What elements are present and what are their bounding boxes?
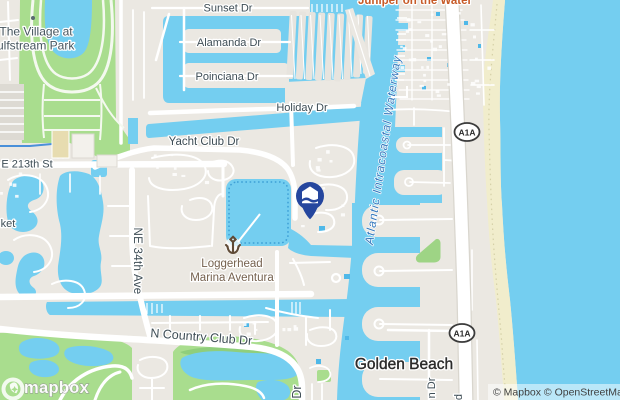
svg-text:The Village at: The Village at (0, 25, 73, 39)
svg-text:Alamanda Dr: Alamanda Dr (197, 37, 262, 49)
svg-text:Gulfstream Park: Gulfstream Park (0, 39, 75, 53)
svg-text:A1A: A1A (458, 127, 475, 137)
svg-text:Loggerhead: Loggerhead (201, 258, 262, 270)
svg-text:Dr: Dr (290, 385, 304, 398)
svg-text:Marina Aventura: Marina Aventura (190, 272, 274, 284)
svg-text:E 213th St: E 213th St (1, 159, 52, 171)
svg-text:A1A: A1A (453, 328, 470, 338)
svg-text:n Dr: n Dr (426, 377, 438, 398)
svg-text:Yacht Club Dr: Yacht Club Dr (169, 136, 240, 148)
svg-text:Poinciana Dr: Poinciana Dr (196, 71, 259, 83)
svg-text:mapbox: mapbox (24, 379, 90, 397)
svg-text:© Mapbox © OpenStreetMap: © Mapbox © OpenStreetMap (493, 387, 620, 399)
svg-text:Golden Beach: Golden Beach (355, 356, 453, 373)
svg-text:d: d (453, 394, 465, 400)
svg-text:Holiday Dr: Holiday Dr (276, 102, 328, 114)
svg-text:NE 34th Ave: NE 34th Ave (131, 227, 143, 294)
svg-text:Sunset Dr: Sunset Dr (204, 3, 253, 15)
svg-text:Juniper on the Water: Juniper on the Water (358, 0, 472, 7)
svg-text:ket: ket (1, 218, 16, 230)
